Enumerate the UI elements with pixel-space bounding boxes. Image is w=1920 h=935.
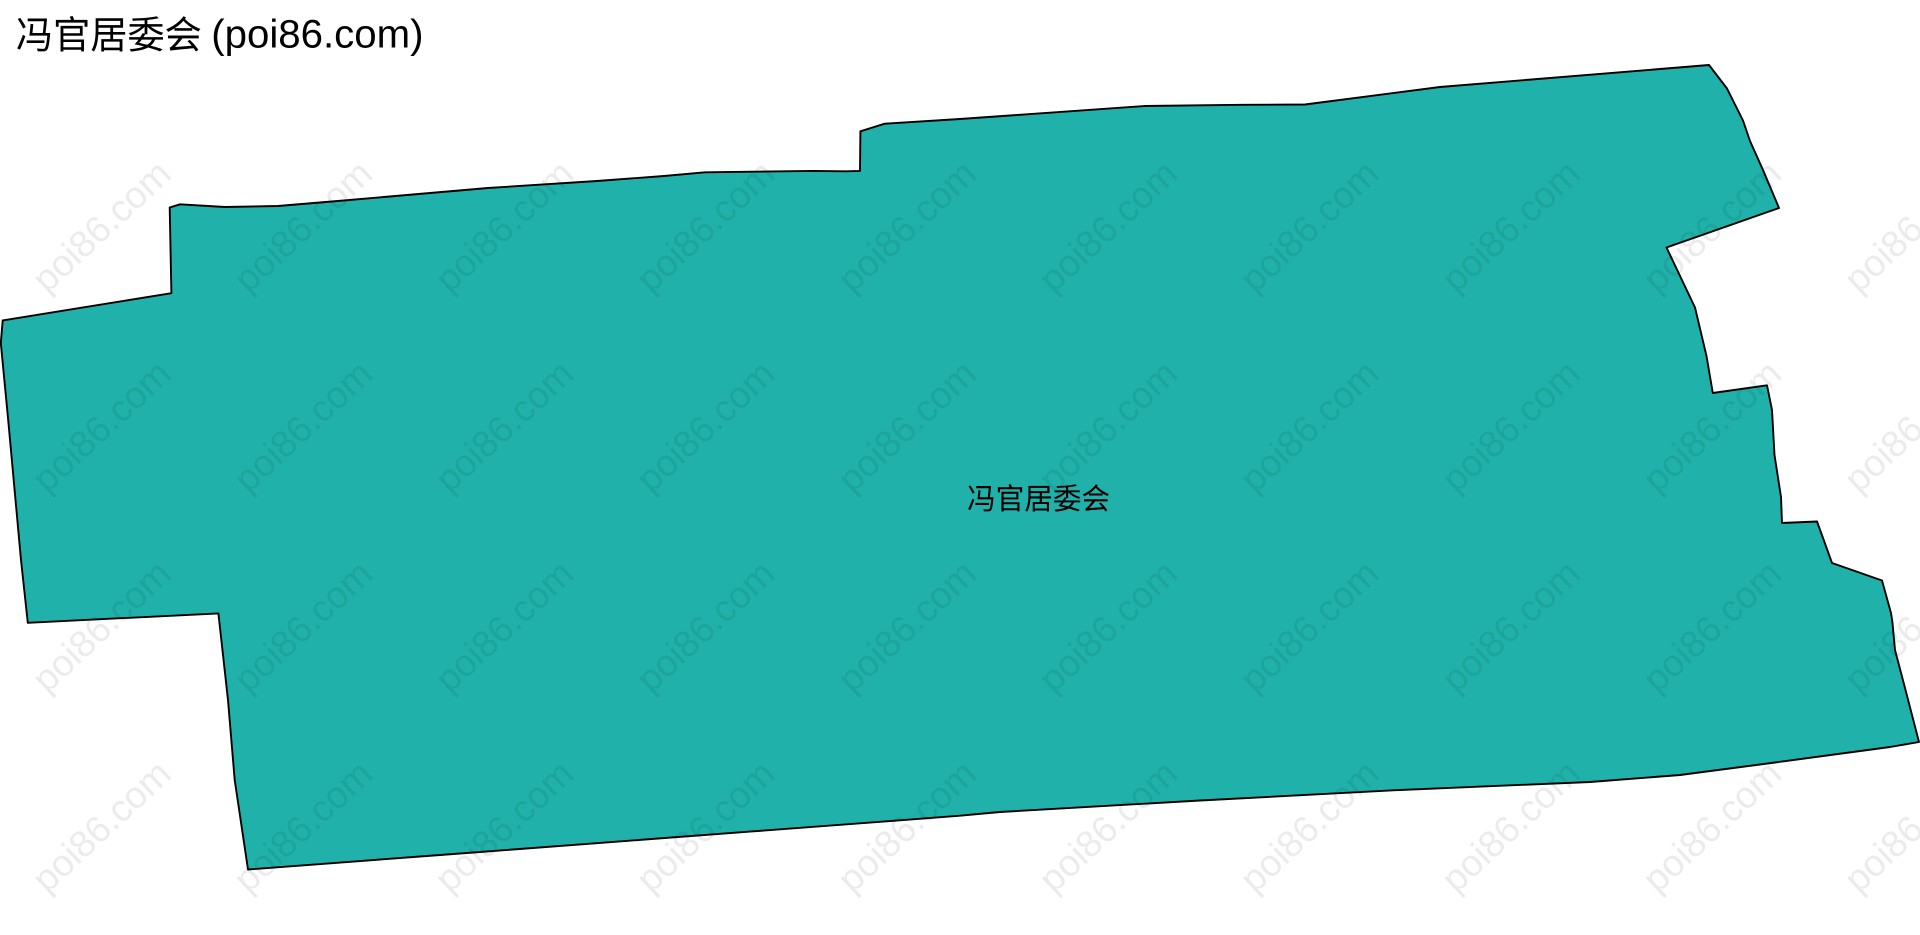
svg-text:(poi86.com): (poi86.com) (211, 12, 423, 57)
